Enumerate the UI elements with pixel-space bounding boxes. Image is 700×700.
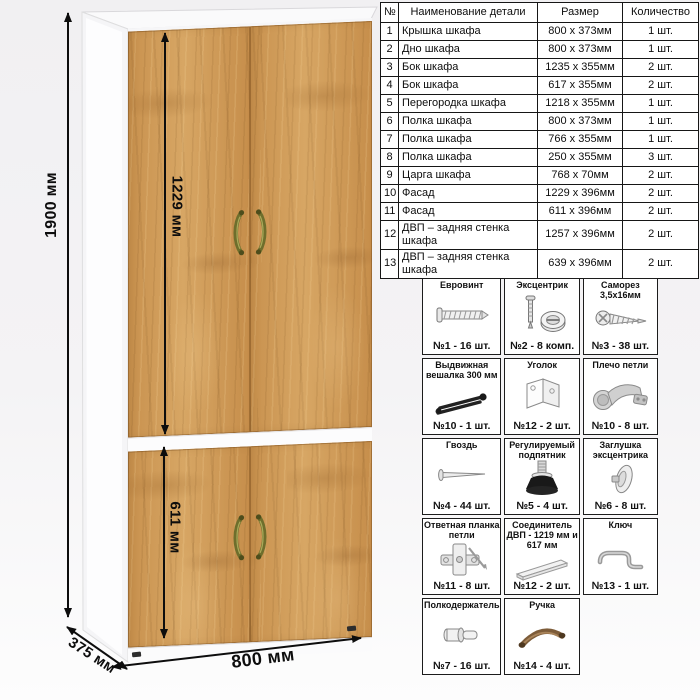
part-qty: 1 шт.: [623, 41, 699, 59]
assembly-instruction-sheet: 1900 мм 1229 мм 611 мм 800 мм 375 мм № Н…: [0, 0, 700, 700]
table-row: 12ДВП – задняя стенка шкафа1257 x 396мм2…: [381, 221, 699, 250]
hardware-item-count: №6 - 8 шт.: [595, 500, 647, 512]
part-number: 3: [381, 59, 399, 77]
part-size: 766 x 355мм: [538, 131, 623, 149]
header-size: Размер: [538, 3, 623, 23]
part-name: Фасад: [399, 203, 538, 221]
parts-table-body: 1Крышка шкафа800 x 373мм1 шт.2Дно шкафа8…: [381, 23, 699, 279]
self-tapping-screw-icon: [592, 303, 648, 337]
part-qty: 2 шт.: [623, 203, 699, 221]
table-row: 7Полка шкафа766 x 355мм1 шт.: [381, 131, 699, 149]
part-name: Царга шкафа: [399, 167, 538, 185]
upper-right-door-handle-icon: [254, 208, 268, 257]
hardware-item: Соединитель ДВП - 1219 мм и 617 мм №12 -…: [504, 518, 579, 595]
total-height-label: 1900 мм: [43, 165, 61, 245]
part-qty: 1 шт.: [623, 113, 699, 131]
shelf-pin-icon: [435, 622, 489, 648]
part-name: Фасад: [399, 185, 538, 203]
part-size: 639 x 396мм: [538, 249, 623, 278]
hardware-item-count: №5 - 4 шт.: [516, 500, 568, 512]
eccentric-cam-icon: [514, 293, 570, 337]
part-number: 7: [381, 131, 399, 149]
table-row: 1Крышка шкафа800 x 373мм1 шт.: [381, 23, 699, 41]
hardware-item-iconbox: [515, 371, 569, 420]
hardware-item-iconbox: [516, 461, 568, 500]
hardware-item-title: Полкодержатель: [424, 601, 499, 611]
euro-screw-icon: [433, 300, 491, 330]
corner-bracket-icon: [515, 374, 569, 416]
parts-table: № Наименование детали Размер Количество …: [380, 2, 699, 279]
part-name: ДВП – задняя стенка шкафа: [399, 249, 538, 278]
hdf-connector-icon: [512, 547, 572, 583]
hardware-item-count: №1 - 16 шт.: [433, 340, 490, 352]
lower-doors: [128, 441, 372, 648]
table-row: 2Дно шкафа800 x 373мм1 шт.: [381, 41, 699, 59]
table-row: 6Полка шкафа800 x 373мм1 шт.: [381, 113, 699, 131]
hardware-item-iconbox: [433, 451, 491, 500]
part-qty: 2 шт.: [623, 167, 699, 185]
hardware-item-iconbox: [592, 531, 648, 580]
upper-doors: [128, 21, 372, 438]
hardware-item: Уголок №12 - 2 шт.: [504, 358, 579, 435]
hardware-item-count: №12 - 2 шт.: [513, 420, 570, 432]
hardware-item-count: №12 - 2 шт.: [513, 580, 570, 592]
hardware-item-count: №13 - 1 шт.: [592, 580, 649, 592]
hardware-item-iconbox: [512, 551, 572, 580]
part-size: 1218 x 355мм: [538, 95, 623, 113]
part-name: Бок шкафа: [399, 77, 538, 95]
hardware-item-title: Выдвижная вешалка 300 мм: [424, 361, 499, 381]
part-size: 768 x 70мм: [538, 167, 623, 185]
upper-right-door: [250, 21, 372, 432]
hardware-item-title: Уголок: [527, 361, 557, 371]
hardware-grid: Евровинт №1 - 16 шт.Эксцентрик №2 - 8 ко…: [422, 278, 658, 675]
hex-key-icon: [592, 535, 648, 575]
hardware-item: Полкодержатель №7 - 16 шт.: [422, 598, 501, 675]
hardware-item: Эксцентрик №2 - 8 комп.: [504, 278, 579, 355]
parts-table-header-row: № Наименование детали Размер Количество: [381, 3, 699, 23]
part-number: 8: [381, 149, 399, 167]
table-row: 5Перегородка шкафа1218 x 355мм1 шт.: [381, 95, 699, 113]
lower-doors-height-label: 611 мм: [167, 488, 184, 568]
hardware-item-title: Саморез 3,5х16мм: [585, 281, 656, 301]
part-number: 4: [381, 77, 399, 95]
hardware-item-iconbox: [596, 461, 644, 500]
hardware-item-iconbox: [433, 291, 491, 340]
part-qty: 2 шт.: [623, 185, 699, 203]
part-name: Бок шкафа: [399, 59, 538, 77]
header-quantity: Количество: [623, 3, 699, 23]
upper-left-door-handle-icon: [232, 209, 246, 258]
nail-icon: [433, 463, 491, 487]
part-name: Полка шкафа: [399, 113, 538, 131]
hardware-item: Регулируемый подпятник №5 - 4 шт.: [504, 438, 579, 515]
part-number: 11: [381, 203, 399, 221]
hardware-item: Гвоздь №4 - 44 шт.: [422, 438, 501, 515]
lower-right-door-handle-icon: [254, 513, 268, 562]
hardware-item: Плечо петли №10 - 8 шт.: [583, 358, 658, 435]
part-name: Дно шкафа: [399, 41, 538, 59]
hardware-item: Ключ №13 - 1 шт.: [583, 518, 658, 595]
hardware-item-title: Евровинт: [440, 281, 483, 291]
table-row: 13ДВП – задняя стенка шкафа639 x 396мм2 …: [381, 249, 699, 278]
hardware-item-title: Соединитель ДВП - 1219 мм и 617 мм: [506, 521, 577, 551]
part-size: 800 x 373мм: [538, 41, 623, 59]
part-number: 13: [381, 249, 399, 278]
hardware-item: Ответная планка петли №11 - 8 шт.: [422, 518, 501, 595]
lower-right-door: [250, 441, 372, 642]
hardware-item-count: №11 - 8 шт.: [433, 580, 490, 592]
header-number: №: [381, 3, 399, 23]
hardware-item-iconbox: [433, 541, 491, 580]
part-qty: 2 шт.: [623, 249, 699, 278]
lower-left-door-handle-icon: [232, 514, 246, 563]
hardware-item: Евровинт №1 - 16 шт.: [422, 278, 501, 355]
hardware-item-iconbox: [514, 611, 570, 660]
hardware-item-count: №2 - 8 комп.: [510, 340, 574, 352]
part-size: 1229 x 396мм: [538, 185, 623, 203]
hardware-item-title: Ключ: [608, 521, 632, 531]
hardware-item-iconbox: [590, 371, 650, 420]
cam-cover-icon: [596, 458, 644, 502]
upper-doors-height-label: 1229 мм: [169, 167, 186, 247]
wardrobe-front: [128, 18, 372, 661]
hinge-plate-icon: [433, 538, 491, 582]
part-number: 1: [381, 23, 399, 41]
part-size: 800 x 373мм: [538, 23, 623, 41]
part-size: 1235 x 355мм: [538, 59, 623, 77]
hardware-item-count: №10 - 8 шт.: [592, 420, 649, 432]
hardware-item-iconbox: [435, 611, 489, 660]
table-row: 10Фасад1229 x 396мм2 шт.: [381, 185, 699, 203]
hardware-item-iconbox: [432, 381, 492, 420]
part-name: Полка шкафа: [399, 131, 538, 149]
part-number: 12: [381, 221, 399, 250]
part-number: 6: [381, 113, 399, 131]
part-name: Перегородка шкафа: [399, 95, 538, 113]
part-size: 611 x 396мм: [538, 203, 623, 221]
hardware-item-count: №3 - 38 шт.: [592, 340, 649, 352]
hardware-item-count: №14 - 4 шт.: [513, 660, 570, 672]
hardware-item: Заглушка эксцентрика №6 - 8 шт.: [583, 438, 658, 515]
part-qty: 3 шт.: [623, 149, 699, 167]
part-size: 800 x 373мм: [538, 113, 623, 131]
part-qty: 2 шт.: [623, 77, 699, 95]
part-qty: 1 шт.: [623, 131, 699, 149]
handle-icon: [514, 617, 570, 653]
part-name: Крышка шкафа: [399, 23, 538, 41]
table-row: 11Фасад611 x 396мм2 шт.: [381, 203, 699, 221]
part-qty: 2 шт.: [623, 221, 699, 250]
header-part-name: Наименование детали: [399, 3, 538, 23]
hardware-item-iconbox: [592, 301, 648, 340]
table-row: 4Бок шкафа617 x 355мм2 шт.: [381, 77, 699, 95]
part-number: 5: [381, 95, 399, 113]
pullout-hanger-icon: [432, 382, 492, 418]
hardware-item: Саморез 3,5х16мм №3 - 38 шт.: [583, 278, 658, 355]
part-size: 250 x 355мм: [538, 149, 623, 167]
hardware-item-title: Эксцентрик: [516, 281, 568, 291]
hinge-arm-icon: [590, 375, 650, 415]
part-name: Полка шкафа: [399, 149, 538, 167]
table-row: 8Полка шкафа250 x 355мм3 шт.: [381, 149, 699, 167]
hardware-item: Выдвижная вешалка 300 мм №10 - 1 шт.: [422, 358, 501, 435]
part-number: 10: [381, 185, 399, 203]
part-qty: 2 шт.: [623, 59, 699, 77]
adjustable-foot-icon: [516, 458, 568, 502]
hardware-item-title: Ручка: [529, 601, 555, 611]
part-size: 617 x 355мм: [538, 77, 623, 95]
wardrobe-left-side-highlight: [86, 18, 122, 655]
hardware-item-count: №10 - 1 шт.: [433, 420, 490, 432]
table-row: 9Царга шкафа768 x 70мм2 шт.: [381, 167, 699, 185]
part-qty: 1 шт.: [623, 95, 699, 113]
part-number: 2: [381, 41, 399, 59]
hardware-item-title: Гвоздь: [446, 441, 477, 451]
hardware-item-title: Плечо петли: [592, 361, 648, 371]
hardware-item: Ручка №14 - 4 шт.: [504, 598, 579, 675]
hardware-item-count: №4 - 44 шт.: [433, 500, 490, 512]
hardware-item-count: №7 - 16 шт.: [433, 660, 490, 672]
part-number: 9: [381, 167, 399, 185]
hardware-item-iconbox: [514, 291, 570, 340]
part-size: 1257 x 396мм: [538, 221, 623, 250]
table-row: 3Бок шкафа1235 x 355мм2 шт.: [381, 59, 699, 77]
part-qty: 1 шт.: [623, 23, 699, 41]
part-name: ДВП – задняя стенка шкафа: [399, 221, 538, 250]
